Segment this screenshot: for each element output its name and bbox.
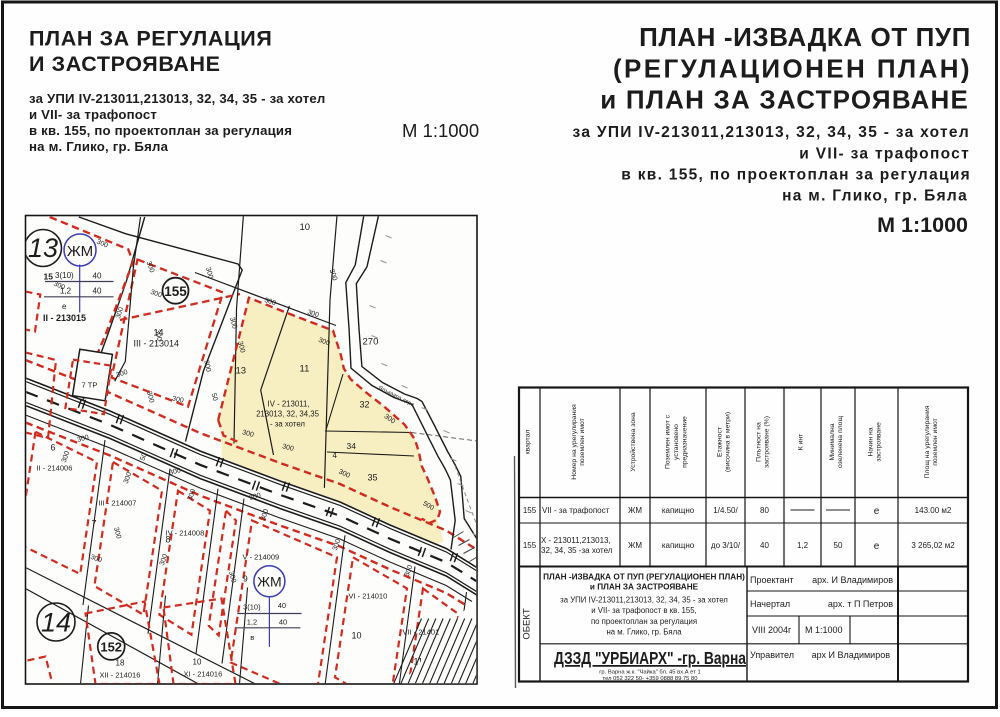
svg-text:34: 34	[347, 441, 357, 451]
svg-text:Устройствена зона: Устройствена зона	[629, 412, 637, 472]
svg-text:е: е	[874, 506, 880, 517]
svg-text:IV - 213011,: IV - 213011,	[268, 400, 310, 409]
svg-text:V - 214009: V - 214009	[243, 553, 280, 562]
svg-text:Етажност: Етажност	[716, 427, 723, 457]
svg-text:на м. Глико, гр. Бяла: на м. Глико, гр. Бяла	[606, 628, 682, 637]
svg-text:и VII- за трафопост в кв. 155,: и VII- за трафопост в кв. 155,	[591, 606, 696, 615]
svg-text:е: е	[62, 302, 67, 311]
svg-text:8: 8	[166, 535, 171, 545]
svg-text:155: 155	[164, 284, 187, 299]
svg-text:10: 10	[193, 658, 202, 667]
svg-text:в кв. 155, по проектоплан за р: в кв. 155, по проектоплан за регулация	[621, 167, 971, 184]
svg-text:Номер на урегулирания: Номер на урегулирания	[571, 404, 578, 480]
svg-text:VII - за трафопост: VII - за трафопост	[542, 506, 610, 515]
svg-text:11: 11	[300, 364, 310, 375]
svg-text:18: 18	[116, 659, 125, 668]
svg-text:и ПЛАН ЗА ЗАСТРОЯВАНЕ: и ПЛАН ЗА ЗАСТРОЯВАНЕ	[590, 583, 699, 592]
svg-text:152: 152	[100, 640, 122, 655]
svg-text:ПЛАН -ИЗВАДКА ОТ ПУП: ПЛАН -ИЗВАДКА ОТ ПУП	[639, 22, 971, 52]
svg-text:Поземлен имот с: Поземлен имот с	[665, 414, 672, 469]
svg-text:7: 7	[92, 519, 97, 529]
svg-text:арх И Владимиров: арх И Владимиров	[812, 650, 891, 660]
svg-text:13: 13	[236, 366, 247, 377]
svg-text:XII - 214016: XII - 214016	[100, 671, 141, 680]
svg-text:арх. т П Петров: арх. т П Петров	[828, 599, 893, 609]
svg-text:на м. Глико, гр. Бяла: на м. Глико, гр. Бяла	[29, 139, 169, 154]
svg-text:VII - 21401: VII - 21401	[403, 628, 440, 637]
svg-text:(РЕГУЛАЦИОНЕН ПЛАН): (РЕГУЛАЦИОНЕН ПЛАН)	[613, 54, 972, 84]
svg-text:Площ на урегулирания: Площ на урегулирания	[924, 405, 931, 478]
svg-text:270: 270	[363, 337, 379, 348]
svg-text:в: в	[250, 633, 254, 642]
svg-text:40: 40	[93, 287, 102, 296]
svg-text:XI - 214016: XI - 214016	[184, 670, 223, 679]
svg-text:X - 213011,213013,: X - 213011,213013,	[541, 536, 611, 545]
svg-text:Начертал: Начертал	[750, 599, 790, 609]
svg-text:капищно: капищно	[662, 506, 695, 515]
svg-text:10: 10	[300, 222, 311, 233]
svg-text:ПЛАН ЗА РЕГУЛАЦИЯ: ПЛАН ЗА РЕГУЛАЦИЯ	[29, 27, 272, 51]
svg-text:- за хотел: - за хотел	[270, 420, 305, 429]
svg-text:40: 40	[760, 541, 769, 550]
svg-text:Управител: Управител	[750, 650, 794, 660]
svg-text:9: 9	[243, 574, 248, 584]
svg-text:Начин на: Начин на	[867, 427, 874, 456]
svg-text:ЖМ: ЖМ	[67, 243, 93, 260]
svg-text:И ЗАСТРОЯВАНЕ: И ЗАСТРОЯВАНЕ	[29, 52, 221, 76]
svg-text:3 265,02 м2: 3 265,02 м2	[911, 541, 955, 550]
svg-text:за УПИ IV-213011,213013, 32, 3: за УПИ IV-213011,213013, 32, 34, 35 - за…	[560, 596, 728, 605]
svg-text:155: 155	[523, 541, 537, 550]
svg-text:14: 14	[41, 608, 71, 638]
svg-text:10: 10	[352, 631, 362, 641]
svg-text:ОБЕКТ: ОБЕКТ	[522, 608, 533, 639]
svg-text:Проектант: Проектант	[750, 575, 794, 585]
svg-text:40: 40	[93, 272, 102, 281]
svg-text:застрояване: застрояване	[876, 422, 883, 462]
svg-text:ЖМ: ЖМ	[257, 574, 282, 590]
svg-text:ЖМ: ЖМ	[628, 541, 642, 550]
svg-text:3(10): 3(10)	[243, 603, 261, 612]
svg-text:32: 32	[360, 400, 370, 410]
svg-text:6: 6	[51, 443, 56, 453]
svg-text:40: 40	[278, 601, 286, 610]
svg-text:II - 213015: II - 213015	[43, 313, 86, 323]
svg-text:е: е	[874, 541, 880, 552]
svg-text:(височина в метри): (височина в метри)	[725, 412, 732, 472]
svg-text:50: 50	[834, 541, 843, 550]
svg-text:озеленена площ: озеленена площ	[837, 416, 844, 469]
svg-text:М 1:1000: М 1:1000	[877, 213, 968, 237]
svg-text:и VII- за трафопост: и VII- за трафопост	[29, 107, 157, 122]
svg-text:в кв. 155, по проектоплан за р: в кв. 155, по проектоплан за регулация	[29, 123, 292, 138]
svg-text:II - 214006: II - 214006	[37, 464, 73, 473]
svg-text:35: 35	[368, 473, 378, 483]
svg-text:155: 155	[523, 506, 537, 515]
svg-text:Минимална: Минимална	[829, 423, 836, 460]
svg-text:40: 40	[279, 617, 287, 626]
svg-text:1,2: 1,2	[797, 541, 809, 550]
svg-text:3(10): 3(10)	[55, 271, 74, 280]
svg-text:32, 34, 35 -за хотел: 32, 34, 35 -за хотел	[541, 546, 613, 555]
svg-text:143.00 м2: 143.00 м2	[915, 506, 952, 515]
svg-text:за УПИ IV-213011,213013, 32, 3: за УПИ IV-213011,213013, 32, 34, 35 - за…	[29, 91, 325, 106]
svg-text:4: 4	[333, 451, 338, 460]
svg-text:IV - 214008: IV - 214008	[166, 529, 205, 538]
svg-text:Плътност на: Плътност на	[755, 422, 762, 462]
svg-text:15: 15	[44, 272, 54, 282]
svg-text:1/4.50/: 1/4.50/	[713, 506, 738, 515]
svg-text:арх. И Владимиров: арх. И Владимиров	[812, 575, 893, 585]
svg-text:М 1:1000: М 1:1000	[402, 120, 479, 141]
svg-text:7 ТР: 7 ТР	[82, 381, 98, 390]
svg-text:К инт: К инт	[798, 434, 805, 451]
svg-text:М 1:1000: М 1:1000	[805, 625, 843, 635]
svg-text:213013, 32, 34,35: 213013, 32, 34,35	[256, 410, 320, 419]
svg-text:ЖМ: ЖМ	[628, 506, 642, 515]
svg-text:III - 214007: III - 214007	[99, 499, 137, 508]
svg-text:поземлен имот: поземлен имот	[579, 418, 586, 465]
svg-text:застрояване (%): застрояване (%)	[764, 416, 771, 468]
svg-text:VIII 2004г: VIII 2004г	[752, 625, 792, 635]
svg-text:поземлен имот: поземлен имот	[932, 418, 939, 465]
svg-text:80: 80	[760, 506, 769, 515]
svg-text:по проектоплан за регулация: по проектоплан за регулация	[591, 617, 697, 626]
svg-text:тел 052 322 50- +359 0888 89: тел 052 322 50- +359 0888 89 75 80	[603, 676, 698, 682]
svg-text:13: 13	[28, 233, 58, 263]
svg-text:на м. Глико, гр. Бяла: на м. Глико, гр. Бяла	[782, 188, 968, 205]
svg-text:установено: установено	[673, 424, 680, 460]
svg-text:предназначение: предназначение	[681, 416, 688, 468]
svg-text:за УПИ IV-213011,213013, 32, 3: за УПИ IV-213011,213013, 32, 34, 35 - за…	[573, 124, 970, 141]
svg-text:1,2: 1,2	[247, 617, 257, 626]
svg-text:VI - 214010: VI - 214010	[349, 592, 388, 601]
svg-text:квартал: квартал	[525, 430, 532, 455]
svg-text:и VII- за трафопост: и VII- за трафопост	[799, 146, 970, 163]
svg-text:и ПЛАН ЗА ЗАСТРОЯВАНЕ: и ПЛАН ЗА ЗАСТРОЯВАНЕ	[600, 85, 969, 115]
svg-text:до 3/10/: до 3/10/	[711, 541, 741, 550]
svg-text:ДЗЗД "УРБИАРХ" -гр. Варна: ДЗЗД "УРБИАРХ" -гр. Варна	[554, 648, 746, 668]
svg-text:гр. Варна ж.к. "Чайка" бл. 45: гр. Варна ж.к. "Чайка" бл. 45 вх.А ет 1	[599, 669, 700, 676]
svg-text:ПЛАН -ИЗВАДКА ОТ ПУП (РЕГУЛАЦИ: ПЛАН -ИЗВАДКА ОТ ПУП (РЕГУЛАЦИОНЕН ПЛАН)	[543, 573, 745, 582]
svg-text:капищно: капищно	[662, 541, 695, 550]
